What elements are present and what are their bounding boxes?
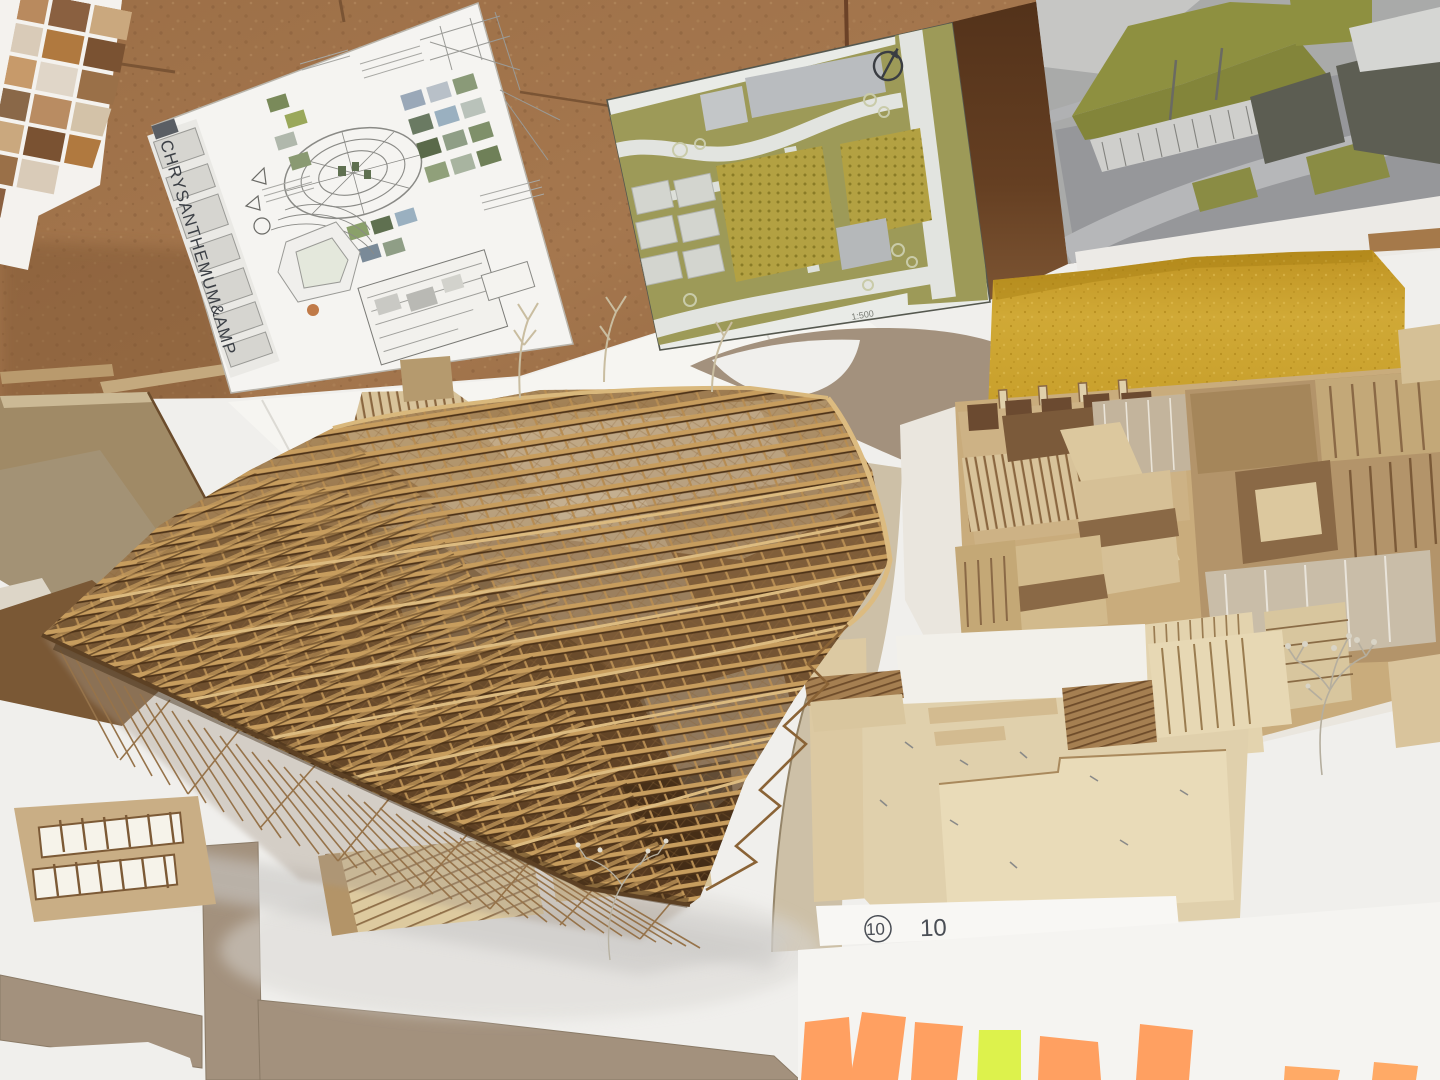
- svg-text:10: 10: [866, 920, 886, 940]
- svg-text:10: 10: [920, 914, 948, 942]
